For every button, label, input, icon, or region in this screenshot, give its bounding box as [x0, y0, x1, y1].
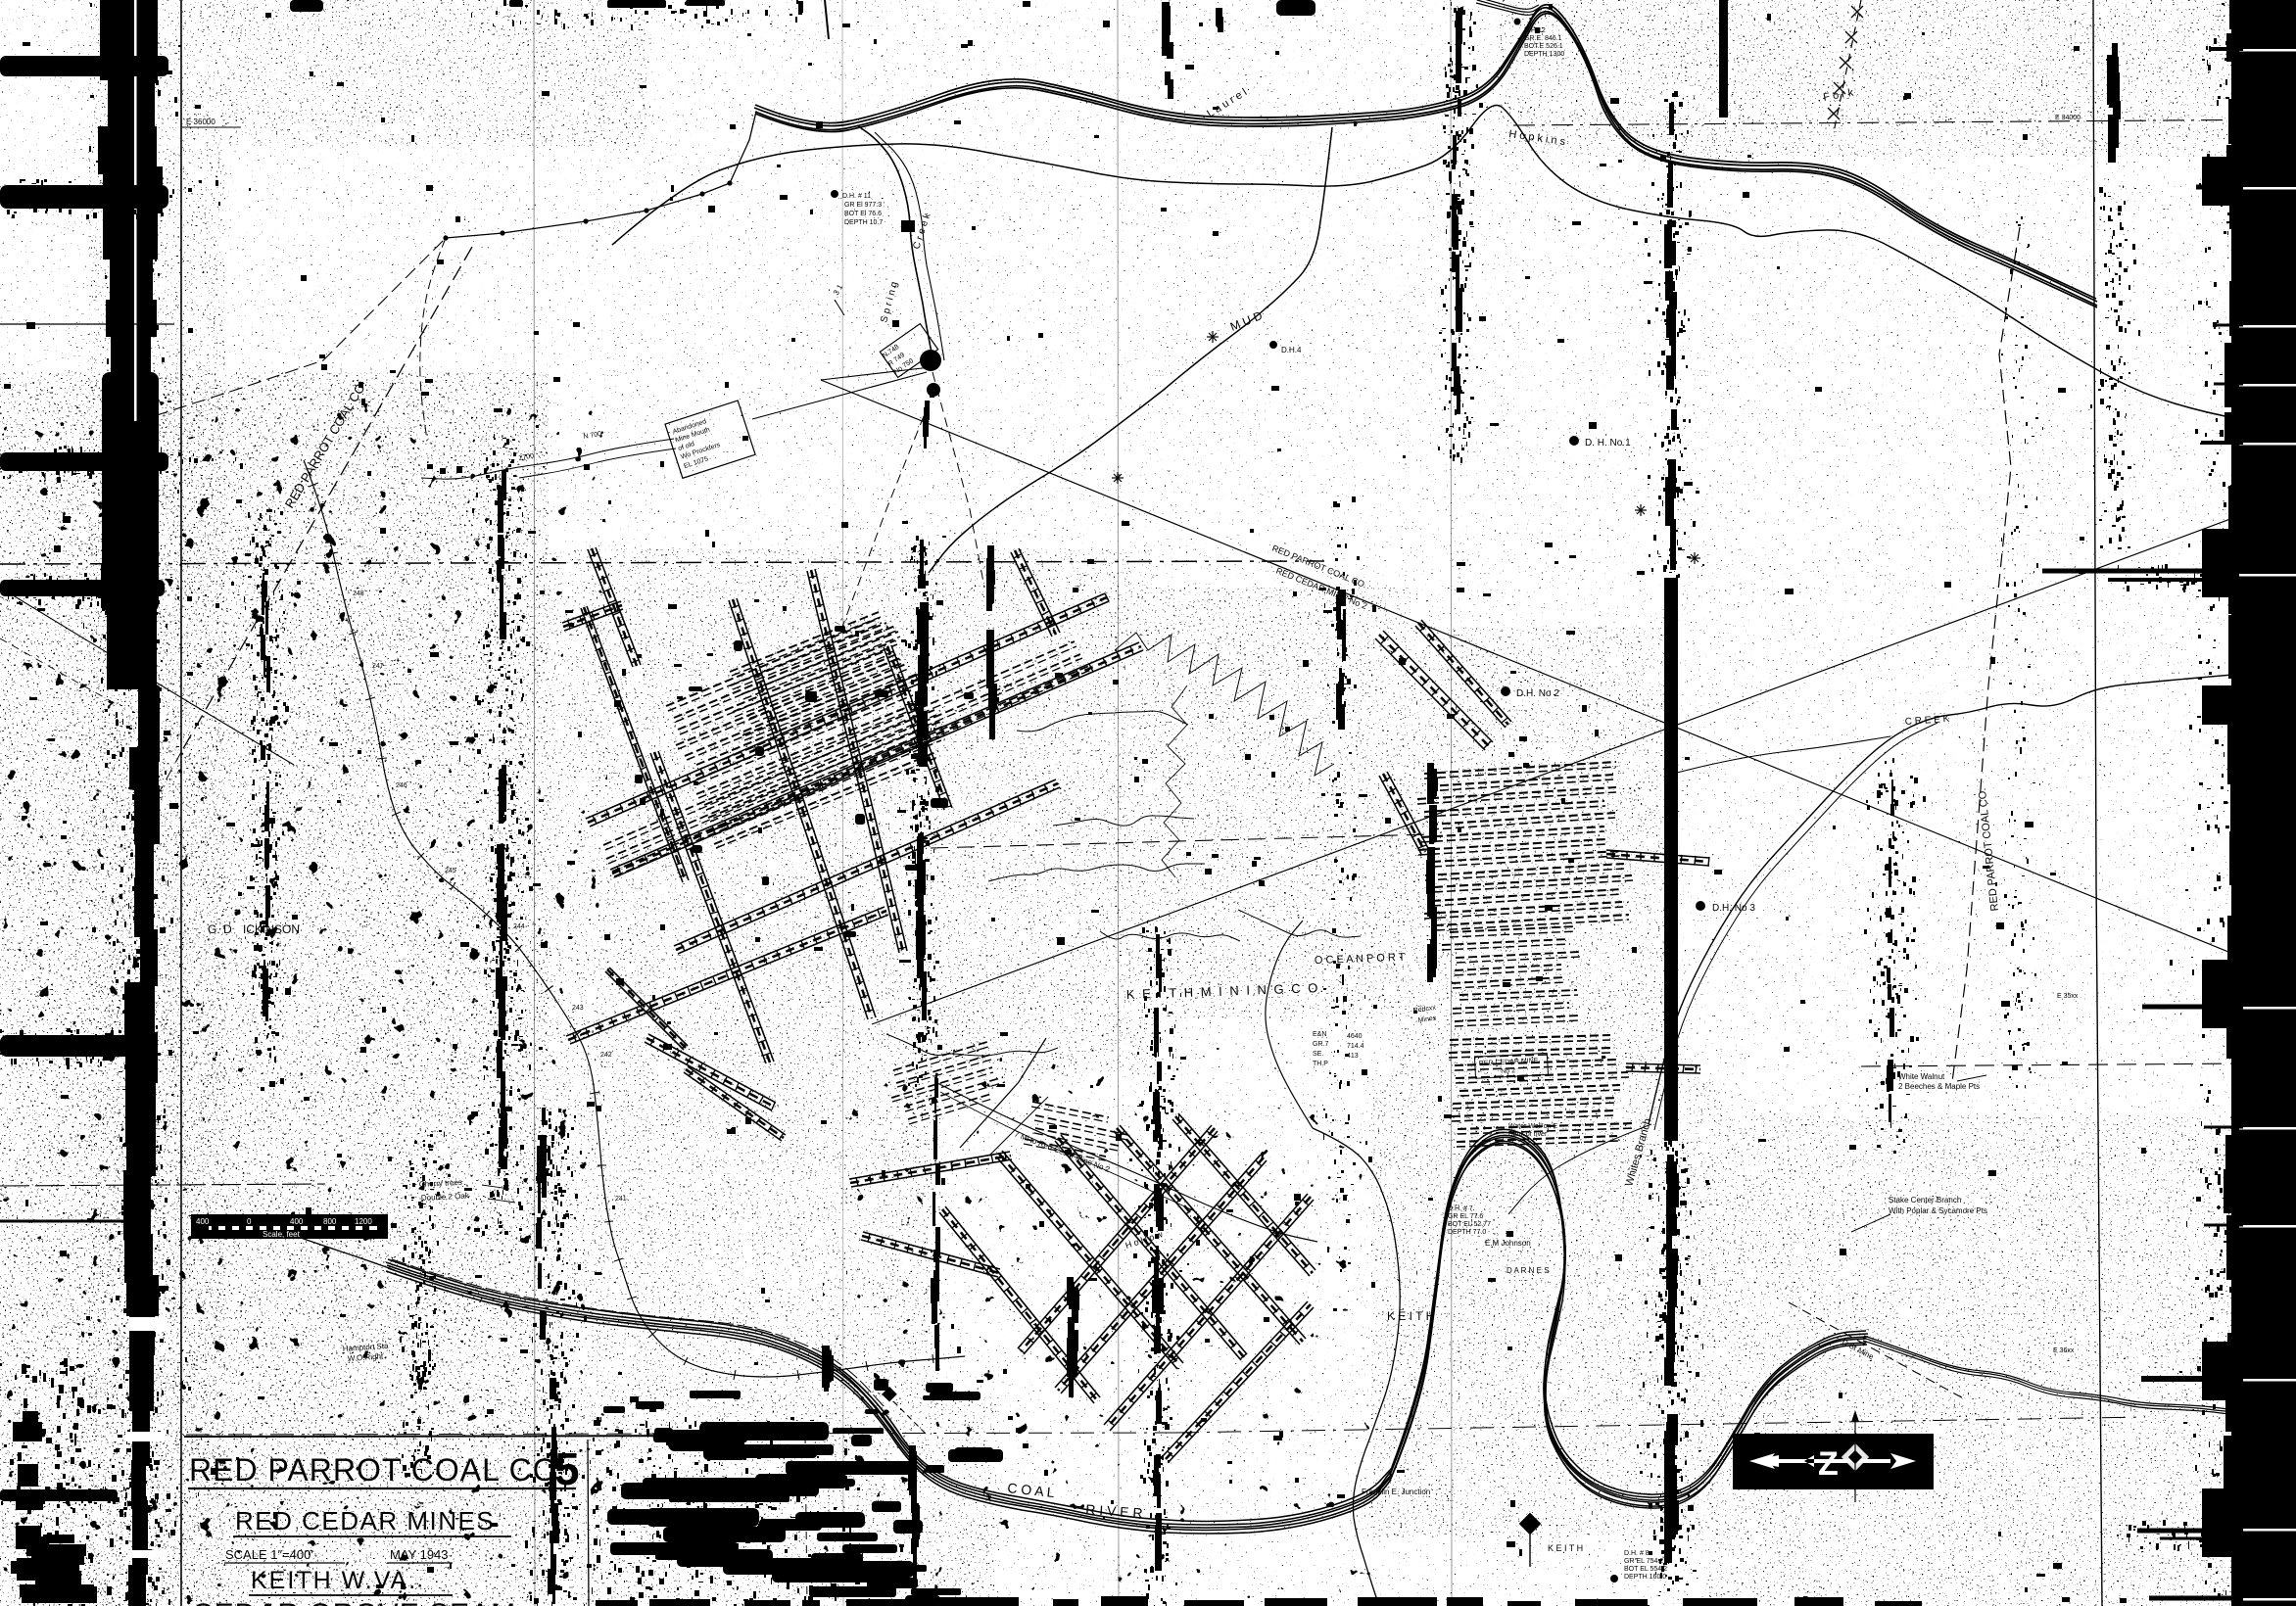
svg-text:241: 241 — [615, 1196, 627, 1203]
svg-text:White Walnut: White Walnut — [1898, 1072, 1945, 1081]
svg-text:DEPTH 1300: DEPTH 1300 — [1524, 51, 1564, 58]
svg-text:E 36000: E 36000 — [186, 118, 215, 126]
svg-text:D.H. No 3: D.H. No 3 — [1712, 903, 1755, 914]
svg-text:GR.E. 846.1: GR.E. 846.1 — [1524, 35, 1562, 42]
svg-text:BOT El 76.6: BOT El 76.6 — [844, 211, 882, 217]
svg-text:DEPTH 77.0: DEPTH 77.0 — [1448, 1229, 1486, 1236]
svg-text:245: 245 — [445, 868, 456, 874]
svg-text:Stake Center Branch: Stake Center Branch — [1889, 1196, 1961, 1204]
svg-text:247: 247 — [372, 663, 384, 670]
svg-text:400: 400 — [290, 1217, 304, 1226]
svg-text:D.H. No 2: D.H. No 2 — [1516, 688, 1559, 699]
svg-text:DEPTH 10.7: DEPTH 10.7 — [844, 219, 883, 226]
svg-text:BOT EL 52.77: BOT EL 52.77 — [1448, 1221, 1491, 1228]
svg-text:Water Well on E: Water Well on E — [1508, 1123, 1558, 1130]
svg-text:Scale, feet: Scale, feet — [263, 1230, 301, 1239]
svg-text:1200: 1200 — [355, 1217, 372, 1226]
svg-text:D.H. # 7: D.H. # 7 — [1448, 1205, 1473, 1212]
svg-text:K E I T H: K E I T H — [1548, 1543, 1583, 1553]
svg-text:Bank of river: Bank of river — [1508, 1131, 1548, 1138]
svg-text:246: 246 — [396, 782, 407, 789]
svg-text:DEPTH 160.0: DEPTH 160.0 — [1624, 1574, 1666, 1581]
svg-text:D.H.12: D.H.12 — [1524, 27, 1546, 34]
svg-text:G. D: G. D — [208, 922, 232, 936]
svg-text:SE.: SE. — [1313, 1051, 1323, 1058]
svg-text:800: 800 — [323, 1217, 337, 1226]
svg-text:413: 413 — [1347, 1053, 1359, 1060]
svg-text:E 34000: E 34000 — [2055, 115, 2081, 121]
svg-text:E 35xx: E 35xx — [2057, 993, 2079, 1000]
svg-text:GR EL 754.2: GR EL 754.2 — [1624, 1558, 1663, 1565]
svg-text:D. H. No 1: D. H. No 1 — [1585, 438, 1631, 449]
svg-text:714.4: 714.4 — [1347, 1043, 1364, 1050]
svg-text:K E I T H: K E I T H — [1387, 1309, 1434, 1323]
svg-text:0: 0 — [247, 1217, 252, 1226]
svg-text:SCALE 1″=400′: SCALE 1″=400′ — [225, 1547, 313, 1562]
svg-text:No 2: No 2 — [1501, 1067, 1515, 1075]
svg-text:D.H.4: D.H.4 — [1281, 346, 1302, 354]
svg-text:CEDAR GROVE SEAM: CEDAR GROVE SEAM — [192, 1598, 516, 1606]
svg-text:248: 248 — [353, 590, 364, 597]
svg-text:BOT EL 554.2: BOT EL 554.2 — [1624, 1566, 1667, 1573]
svg-text:E.M Johnson: E.M Johnson — [1485, 1239, 1531, 1248]
svg-text:4640: 4640 — [1347, 1033, 1363, 1040]
svg-text:TH.P: TH.P — [1313, 1061, 1328, 1067]
svg-text:GR.7: GR.7 — [1313, 1041, 1328, 1048]
svg-text:MAY 1943: MAY 1943 — [390, 1547, 449, 1562]
svg-text:2 Beeches & Maple Pts: 2 Beeches & Maple Pts — [1898, 1082, 1980, 1091]
svg-text:243: 243 — [572, 1005, 584, 1012]
svg-text:D.H. # 8: D.H. # 8 — [1624, 1550, 1650, 1557]
svg-text:KEITH W.VA.: KEITH W.VA. — [251, 1567, 417, 1594]
svg-text:244: 244 — [513, 923, 525, 930]
svg-text:BOT.E 526.1: BOT.E 526.1 — [1524, 43, 1563, 50]
svg-text:RED PARROT COAL CO: RED PARROT COAL CO — [189, 1452, 558, 1488]
svg-text:5: 5 — [554, 1443, 580, 1494]
svg-text:GR EL 77.6: GR EL 77.6 — [1448, 1213, 1483, 1220]
svg-text:RED CEDAR MINES: RED CEDAR MINES — [235, 1506, 495, 1535]
svg-text:D.H. # 11: D.H. # 11 — [842, 193, 871, 200]
svg-text:D A R N E S: D A R N E S — [1507, 1266, 1550, 1275]
svg-text:With Poplar & Sycamore Pts: With Poplar & Sycamore Pts — [1889, 1206, 1987, 1215]
svg-text:ICKINSON: ICKINSON — [243, 922, 300, 936]
svg-text:E 36xx: E 36xx — [2053, 1347, 2075, 1354]
svg-text:Franklin E. Junction: Franklin E. Junction — [1362, 1488, 1430, 1496]
svg-text:E&N: E&N — [1313, 1031, 1326, 1038]
svg-text:GR El 977.3: GR El 977.3 — [844, 202, 882, 209]
svg-text:242: 242 — [600, 1052, 612, 1059]
svg-text:400: 400 — [196, 1217, 210, 1226]
svg-text:Z: Z — [1818, 1445, 1839, 1483]
